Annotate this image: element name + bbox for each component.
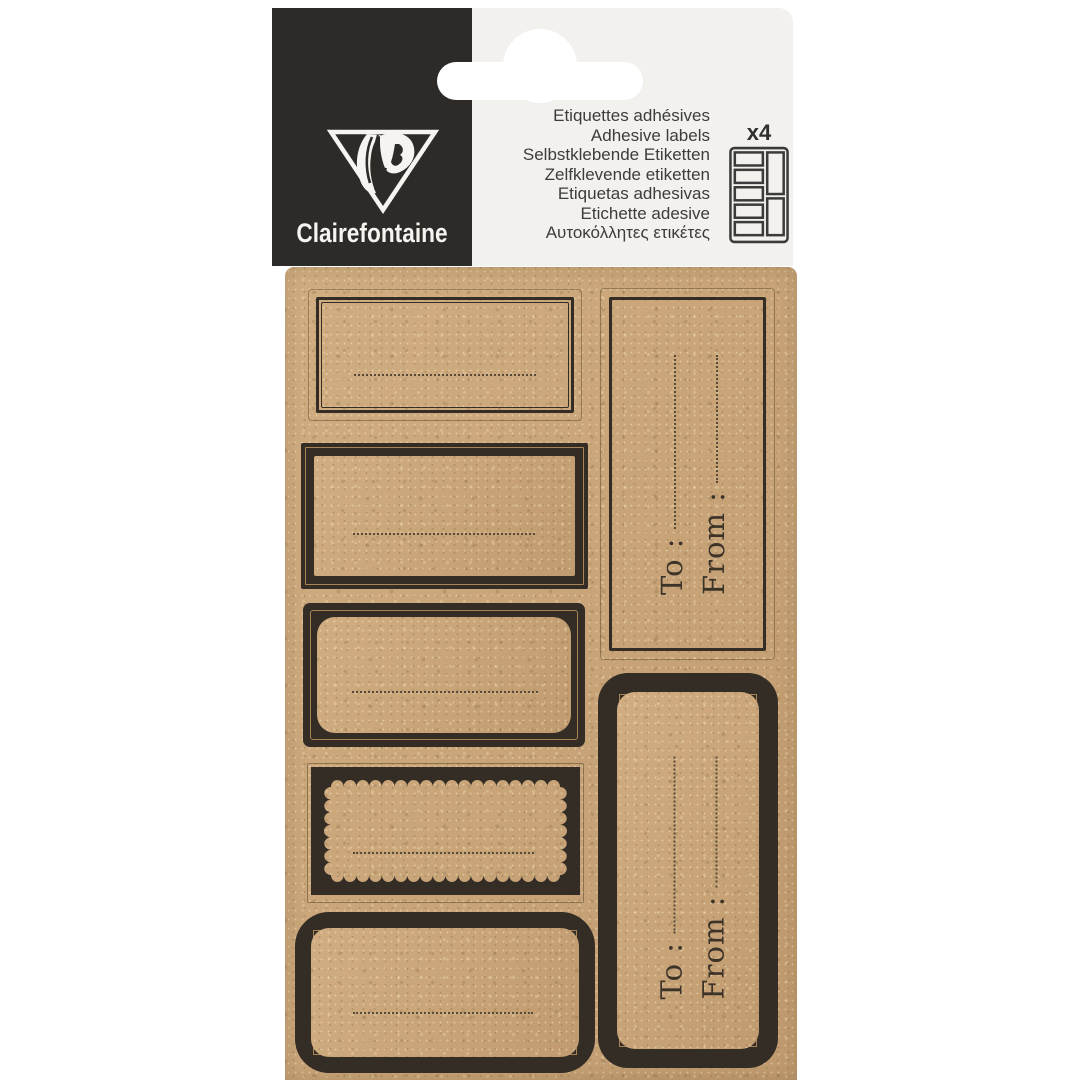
writing-line <box>353 852 534 854</box>
to-from-text: To : From : <box>647 353 731 595</box>
sticker-label-double-border <box>308 289 582 421</box>
writing-line <box>353 1012 533 1014</box>
brand-panel: Clairefontaine <box>272 8 472 266</box>
writing-line <box>353 533 535 535</box>
writing-line <box>352 691 538 693</box>
label-frame-thin-rule <box>321 302 569 408</box>
gift-tag-to-from: To : From : <box>600 288 775 660</box>
from-line: From : <box>689 353 731 595</box>
product-photo: Clairefontaine Etiquettes adhésives Adhe… <box>0 0 1080 1080</box>
writing-line <box>674 757 676 934</box>
sticker-label-stamp-scalloped <box>307 763 584 903</box>
product-name-fr: Etiquettes adhésives <box>523 106 710 126</box>
to-from-text: To : From : <box>647 755 731 1000</box>
clairefontaine-logo-icon <box>322 124 444 216</box>
from-label: From : <box>697 491 731 595</box>
sticker-label-thick-border <box>301 443 588 589</box>
writing-line <box>674 355 676 529</box>
product-name-en: Adhesive labels <box>523 126 710 146</box>
count-badge: x4 <box>729 120 789 146</box>
from-label: From : <box>697 896 731 1000</box>
writing-line <box>354 374 536 376</box>
to-line: To : <box>647 353 689 595</box>
product-name-el: Αυτοκόλλητες ετικέτες <box>523 223 710 243</box>
to-line: To : <box>647 755 689 1000</box>
product-name-es: Etiquetas adhesivas <box>523 184 710 204</box>
label-blank-area <box>317 617 571 733</box>
sticker-label-rounded-window <box>303 603 585 747</box>
writing-line <box>716 757 718 888</box>
to-label: To : <box>655 537 689 595</box>
label-blank-area <box>311 928 579 1057</box>
product-name-de: Selbstklebende Etiketten <box>523 145 710 165</box>
brand-name: Clairefontaine <box>288 218 456 249</box>
to-label: To : <box>655 942 689 1000</box>
product-name-nl: Zelfklevende etiketten <box>523 165 710 185</box>
kraft-sticker-sheet: To : From : To : From : <box>285 267 797 1080</box>
from-line: From : <box>689 755 731 1000</box>
sticker-label-rounded <box>295 912 595 1073</box>
product-name-list: Etiquettes adhésives Adhesive labels Sel… <box>523 106 710 243</box>
label-blank-area <box>314 456 575 576</box>
gift-tag-to-from-rounded: To : From : <box>598 673 778 1068</box>
writing-line <box>716 355 718 483</box>
sheet-layout-icon <box>729 146 789 244</box>
hang-hole-slot <box>437 62 643 100</box>
scalloped-frame <box>311 767 580 895</box>
product-name-it: Etichette adesive <box>523 204 710 224</box>
